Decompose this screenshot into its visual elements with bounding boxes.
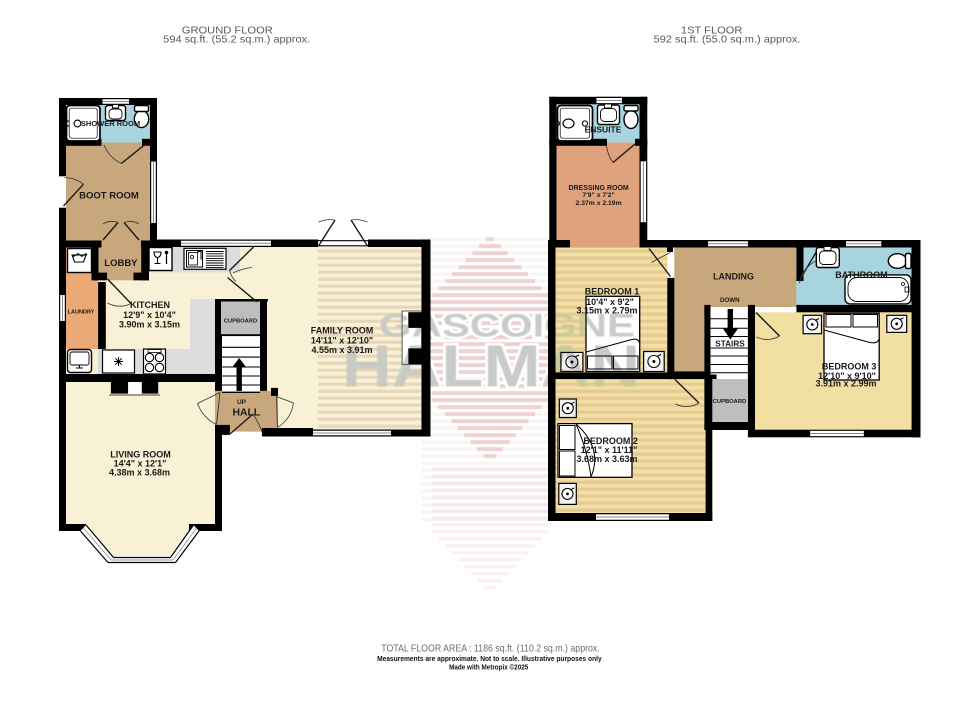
- svg-text:LANDING: LANDING: [713, 272, 754, 282]
- svg-text:BEDROOM 3: BEDROOM 3: [822, 362, 877, 372]
- svg-text:TOTAL FLOOR AREA : 1186 sq.ft.: TOTAL FLOOR AREA : 1186 sq.ft. (110.2 sq…: [381, 643, 600, 654]
- svg-text:LOBBY: LOBBY: [104, 258, 138, 269]
- svg-text:LAUNDRY: LAUNDRY: [68, 310, 95, 316]
- svg-text:KITCHEN: KITCHEN: [130, 300, 170, 310]
- svg-text:HALL: HALL: [232, 408, 260, 419]
- svg-text:4.38m x 3.68m: 4.38m x 3.68m: [109, 467, 170, 477]
- svg-text:DOWN: DOWN: [720, 297, 740, 304]
- svg-text:12'9" x 10'4": 12'9" x 10'4": [123, 310, 176, 320]
- svg-text:3.91m x 2.99m: 3.91m x 2.99m: [815, 379, 876, 389]
- svg-text:HALMAN: HALMAN: [342, 333, 640, 400]
- svg-text:CUPBOARD: CUPBOARD: [224, 318, 258, 324]
- svg-text:UP: UP: [237, 399, 247, 406]
- svg-text:594 sq.ft. (55.2 sq.m.) approx: 594 sq.ft. (55.2 sq.m.) approx.: [163, 34, 310, 45]
- svg-text:2.37m x 2.19m: 2.37m x 2.19m: [576, 200, 622, 207]
- svg-text:CUPBOARD: CUPBOARD: [713, 399, 747, 405]
- svg-text:ENSUITE: ENSUITE: [585, 125, 622, 135]
- svg-text:SHOWER ROOM: SHOWER ROOM: [81, 119, 140, 128]
- svg-text:BATHROOM: BATHROOM: [835, 270, 887, 280]
- svg-text:STAIRS: STAIRS: [715, 339, 745, 348]
- svg-text:3.90m x 3.15m: 3.90m x 3.15m: [119, 320, 180, 330]
- svg-text:BEDROOM 1: BEDROOM 1: [585, 287, 640, 297]
- svg-text:BOOT ROOM: BOOT ROOM: [79, 191, 139, 202]
- svg-text:592 sq.ft. (55.0 sq.m.) approx: 592 sq.ft. (55.0 sq.m.) approx.: [654, 34, 801, 45]
- svg-text:Made with Metropix ©2025: Made with Metropix ©2025: [449, 662, 529, 671]
- svg-text:7'9" x 7'2": 7'9" x 7'2": [582, 192, 614, 199]
- svg-text:3.68m x 3.63m: 3.68m x 3.63m: [576, 454, 637, 464]
